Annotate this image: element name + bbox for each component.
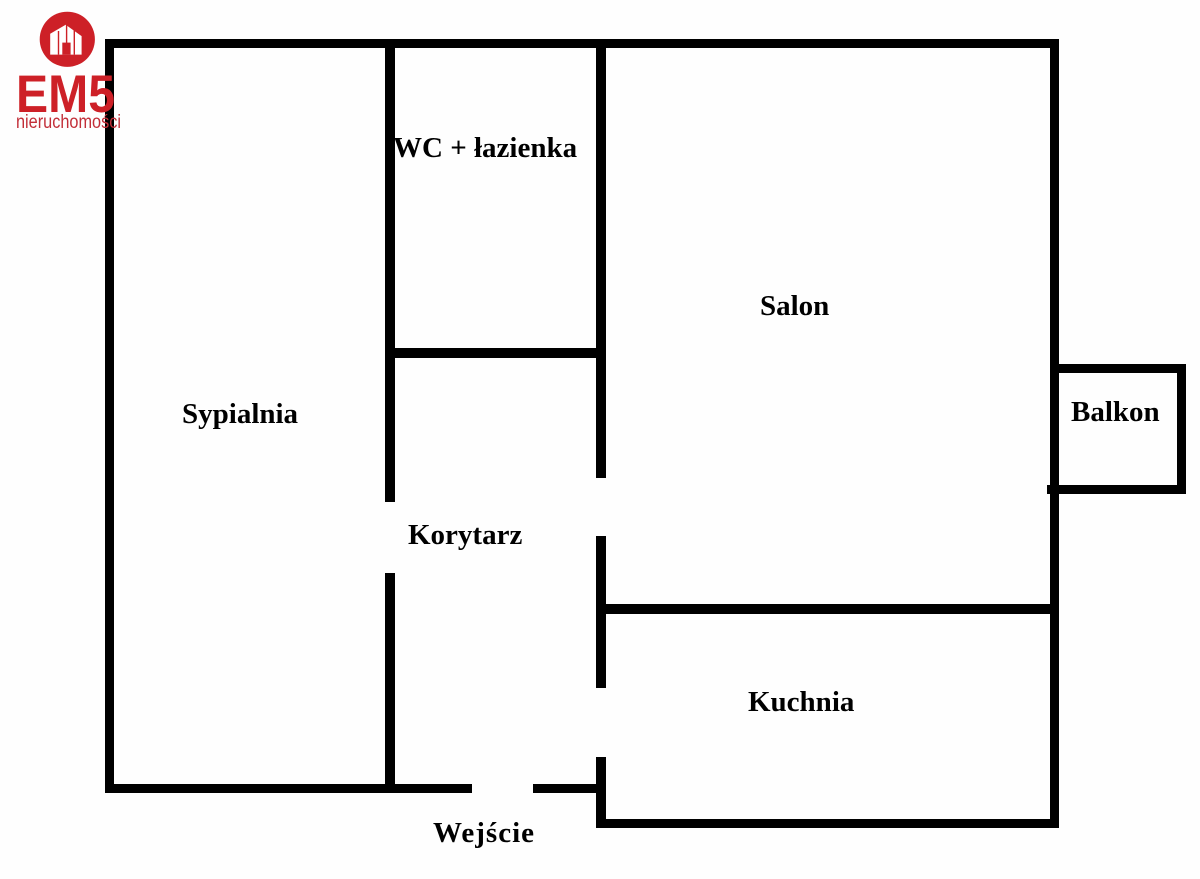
svg-text:nieruchomości: nieruchomości (16, 112, 121, 133)
